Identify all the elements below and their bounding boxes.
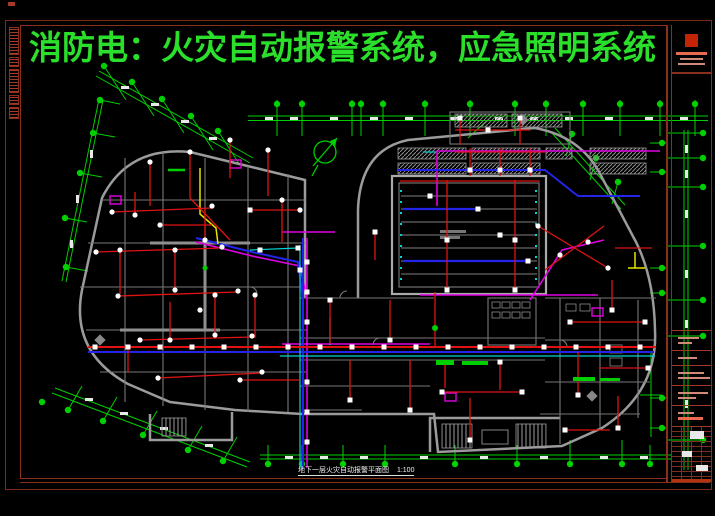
floor-plan-drawing bbox=[0, 0, 715, 516]
axis-bubble-icons bbox=[39, 63, 706, 467]
title-block-text-bar bbox=[680, 58, 703, 60]
title-block bbox=[666, 25, 713, 482]
drawing-title-text: 地下一层火灾自动报警平面图 bbox=[298, 467, 389, 474]
title-block-inner bbox=[671, 25, 712, 482]
wiring-magenta bbox=[110, 151, 660, 468]
wiring-cyan bbox=[250, 152, 655, 468]
north-arrow-icon bbox=[312, 138, 337, 176]
drawing-scale: 1:100 bbox=[397, 467, 415, 474]
pool-hall bbox=[392, 176, 546, 294]
title-block-text-bar bbox=[678, 63, 705, 65]
alarm-device-icons bbox=[93, 116, 651, 445]
title-block-footer bbox=[672, 479, 711, 482]
drawing-title: 地下一层火灾自动报警平面图 1:100 bbox=[298, 466, 414, 476]
wiring-red bbox=[88, 118, 656, 440]
title-block-text-bar bbox=[676, 52, 707, 55]
title-block-row bbox=[672, 330, 711, 350]
title-block-table bbox=[672, 426, 711, 479]
title-block-fields bbox=[672, 330, 711, 482]
interior-walls bbox=[80, 112, 656, 444]
title-block-row bbox=[672, 405, 711, 426]
title-block-row bbox=[672, 385, 711, 405]
red-square-logo bbox=[685, 34, 698, 47]
title-block-header bbox=[672, 34, 711, 74]
green-label-marks bbox=[203, 266, 621, 382]
wall-accents bbox=[120, 240, 250, 330]
building-outline bbox=[80, 128, 655, 452]
title-block-row bbox=[672, 350, 711, 365]
cad-sheet: 消防电：火灾自动报警系统，应急照明系统 bbox=[0, 0, 715, 516]
title-block-row bbox=[672, 365, 711, 385]
